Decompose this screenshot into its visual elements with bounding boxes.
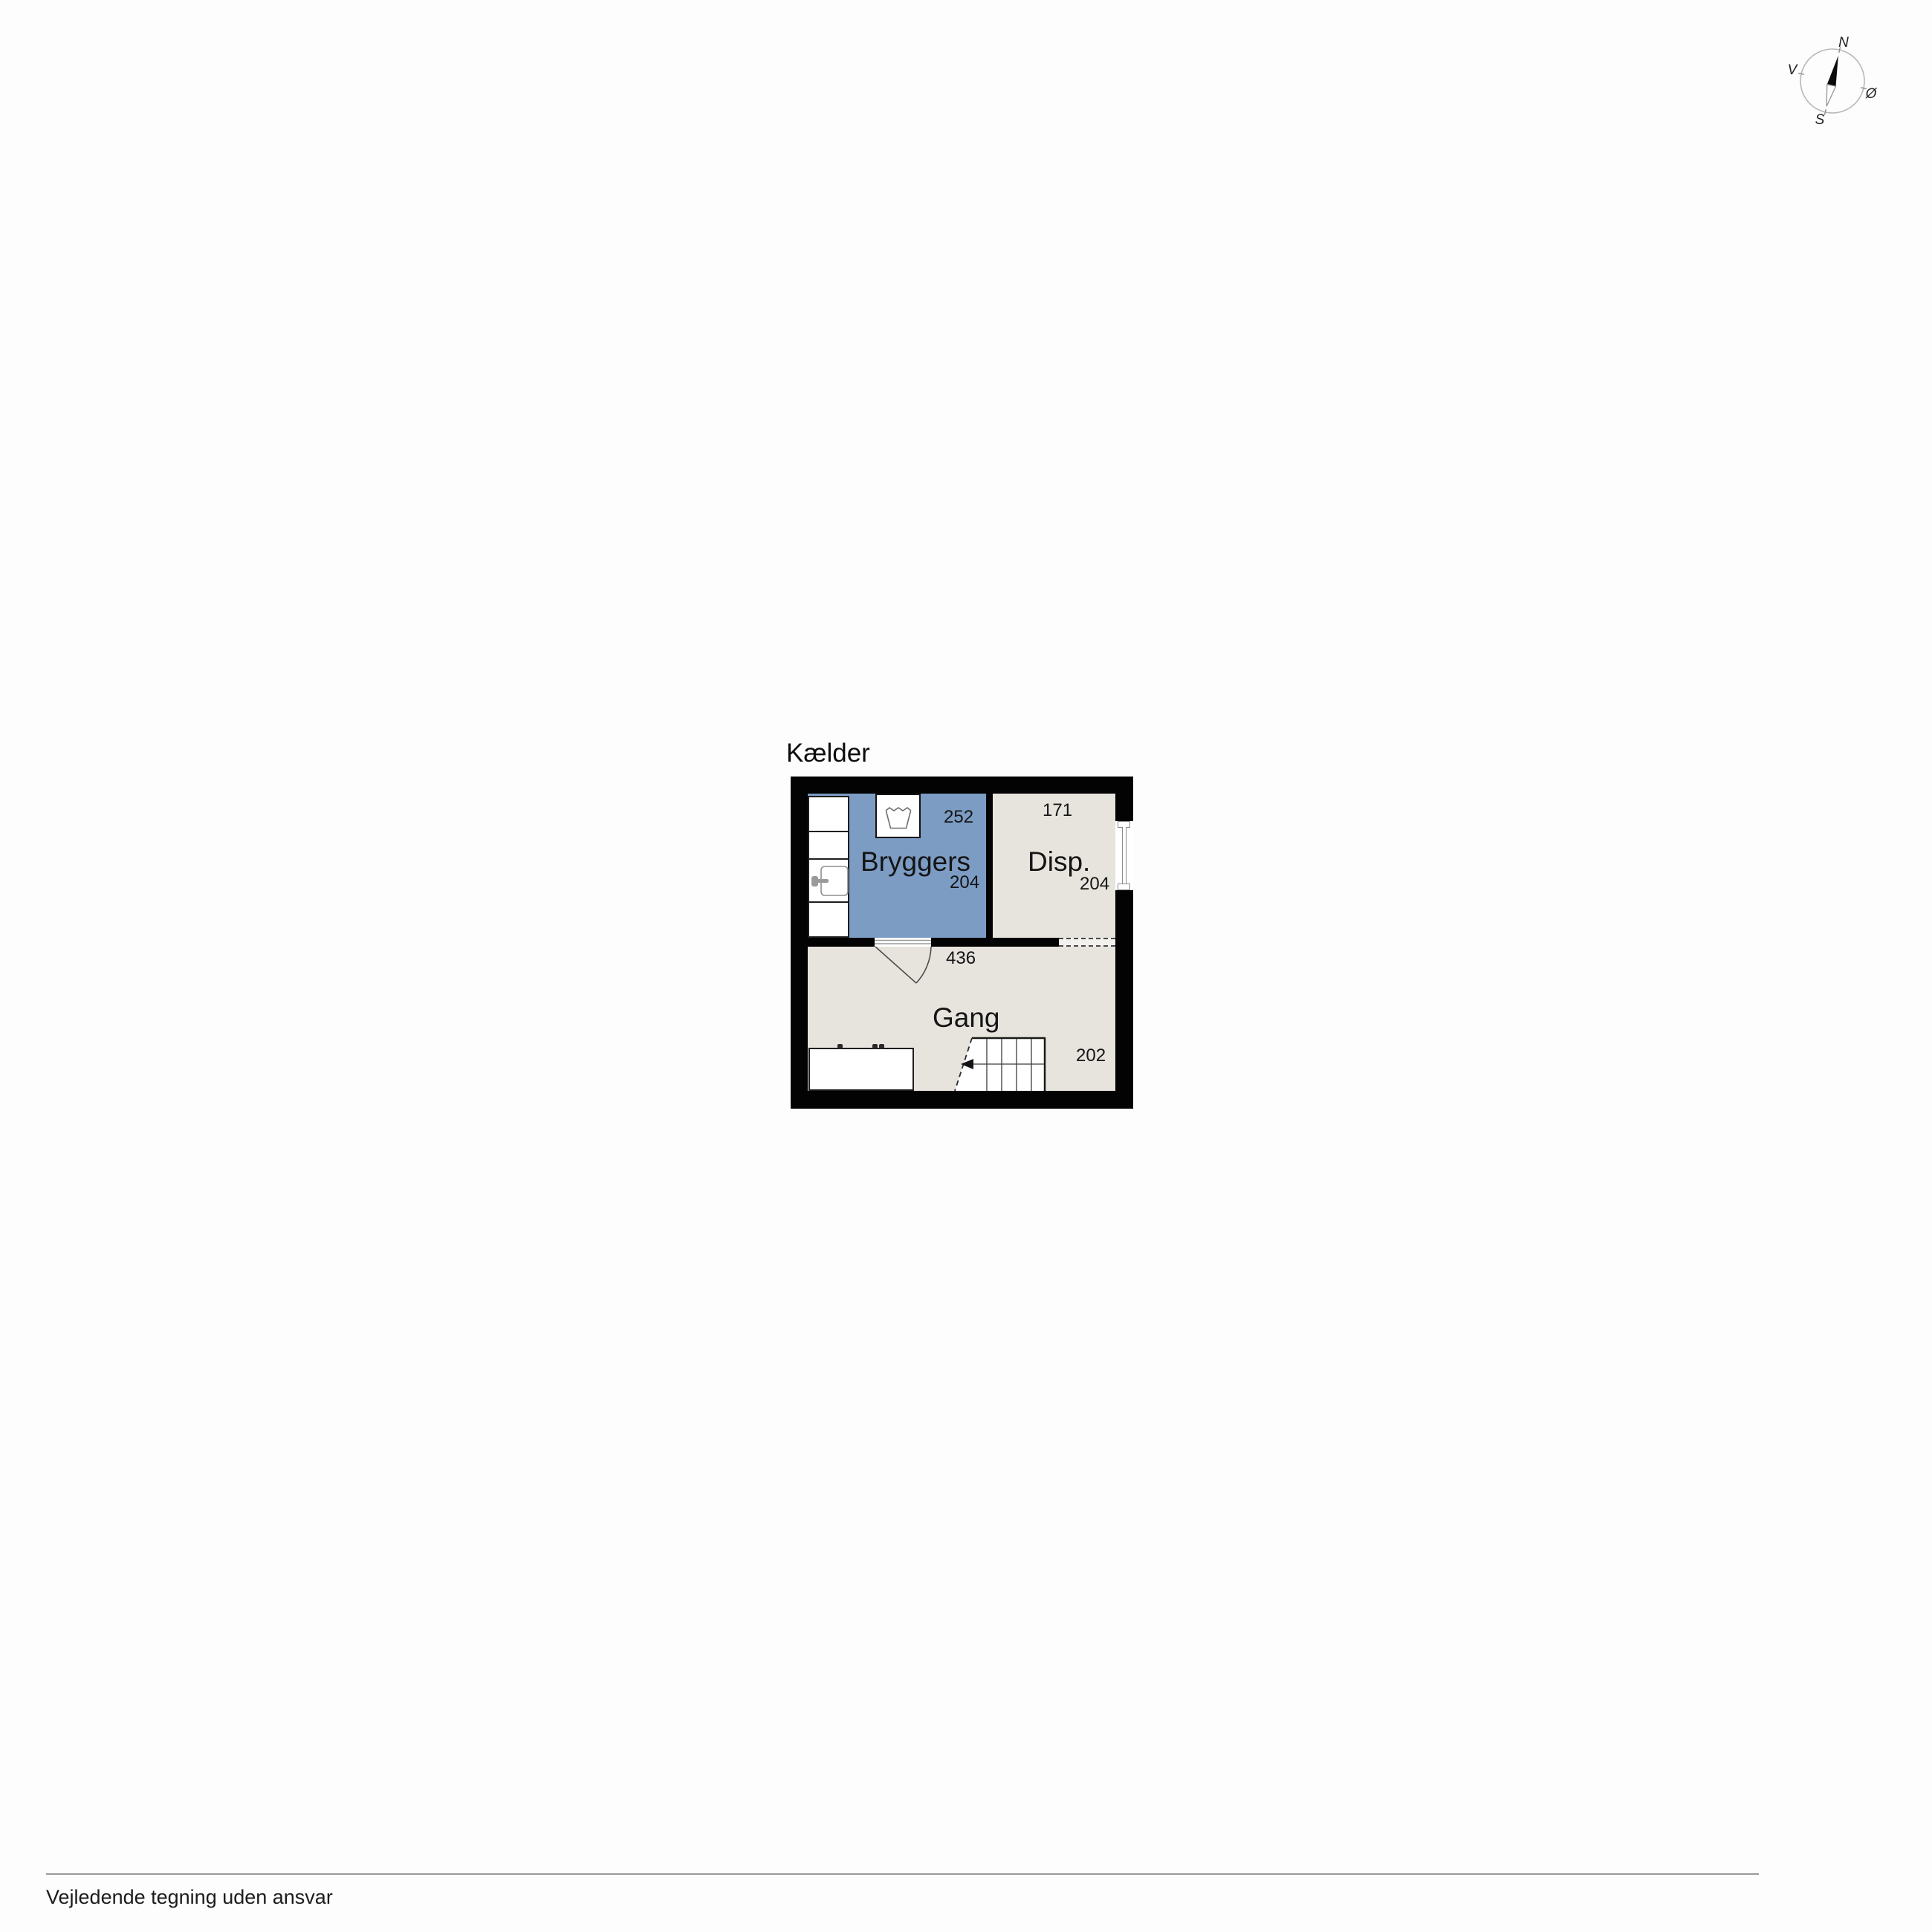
sink-cabinet (808, 858, 849, 903)
workbench (808, 1048, 914, 1091)
compass-label-west: V (1788, 62, 1799, 78)
floor-title: Kælder (786, 739, 870, 768)
workbench-knob (837, 1044, 843, 1048)
window-sill-bottom (1118, 884, 1130, 890)
footer-divider (46, 1873, 1759, 1875)
room-gang-width: 436 (946, 948, 976, 969)
compass-label-south: S (1815, 112, 1825, 128)
compass-needle-north (1827, 55, 1843, 87)
counter-unit-1 (808, 796, 849, 832)
workbench-knob (879, 1044, 884, 1048)
counter-unit-2 (808, 831, 849, 860)
washing-machine (875, 794, 921, 838)
interior-door-opening (875, 938, 931, 947)
compass-needle-south (1822, 84, 1835, 107)
disp-opening-dashed (1059, 938, 1115, 947)
compass-rose: N V Ø S (1782, 22, 1893, 141)
workbench-knob (872, 1044, 878, 1048)
room-disp-width: 171 (1043, 800, 1072, 821)
room-gang-depth: 202 (1076, 1046, 1106, 1066)
room-gang-label: Gang (933, 1002, 1000, 1034)
counter-unit-3 (808, 901, 849, 938)
room-bryggers-width: 252 (944, 807, 973, 828)
room-disp-depth: 204 (1080, 874, 1109, 895)
compass-label-north: N (1838, 35, 1849, 51)
floorplan: Bryggers 252 204 Disp. 171 204 Gang 436 … (791, 777, 1133, 1109)
room-disp-label: Disp. (1028, 846, 1090, 878)
footer-disclaimer: Vejledende tegning uden ansvar (46, 1886, 333, 1909)
room-bryggers-depth: 204 (950, 872, 979, 893)
basement-window (1115, 821, 1133, 890)
compass-needle-group (1791, 39, 1875, 123)
room-disp: Disp. 171 204 (993, 794, 1115, 938)
compass-label-east: Ø (1865, 86, 1878, 102)
window-glass-line (1122, 827, 1127, 884)
